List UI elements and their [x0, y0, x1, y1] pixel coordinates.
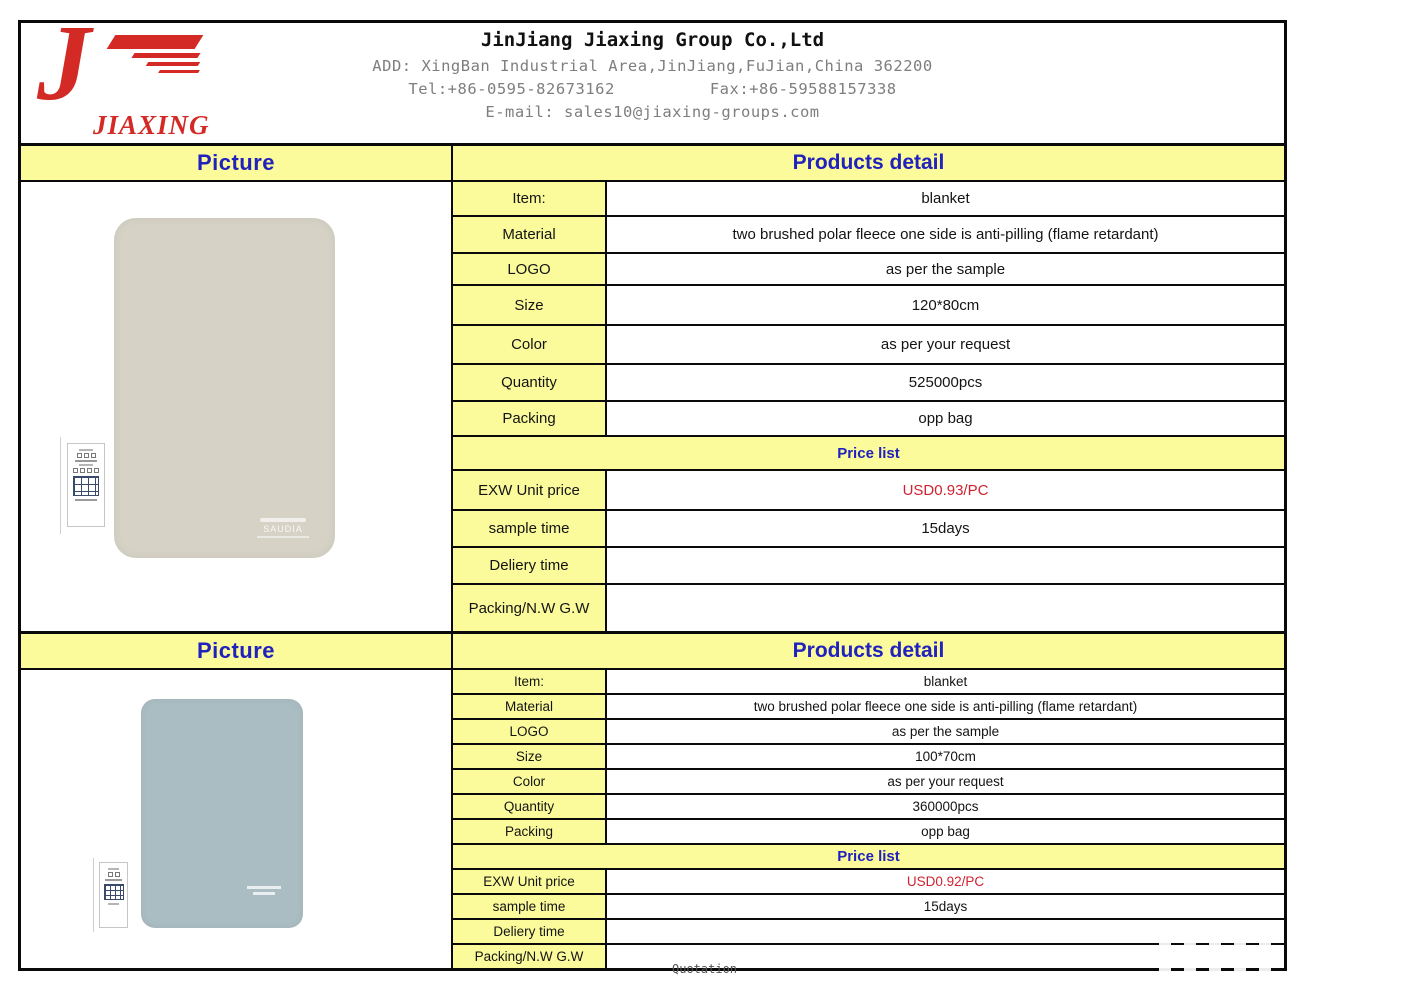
care-label-2 [99, 862, 128, 928]
size-value-2: 100*70cm [607, 745, 1284, 768]
quantity-label-1: Quantity [453, 365, 605, 400]
dimension-line [60, 437, 61, 534]
packing-nw-gw-label-2: Packing/N.W G.W [453, 945, 605, 968]
delivery-time-label-2: Deliery time [453, 920, 605, 943]
blanket-brand-mark: SAUDIA [257, 518, 309, 538]
blanket-image-1: SAUDIA [114, 218, 335, 558]
picture-header-2: Picture [21, 634, 451, 668]
exw-price-value-1: USD0.93/PC [607, 471, 1284, 509]
exw-price-label-1: EXW Unit price [453, 471, 605, 509]
company-info: JinJiang Jiaxing Group Co.,Ltd ADD: Xing… [21, 29, 1284, 126]
sample-time-label-2: sample time [453, 895, 605, 918]
material-label-1: Material [453, 217, 605, 252]
brand-name-text: SAUDIA [263, 524, 303, 534]
item-value-2: blanket [607, 670, 1284, 693]
item-value-1: blanket [607, 182, 1284, 215]
packing-label-2: Packing [453, 820, 605, 843]
color-label-1: Color [453, 326, 605, 363]
company-address: ADD: XingBan Industrial Area,JinJiang,Fu… [21, 57, 1284, 75]
logo-value-1: as per the sample [607, 254, 1284, 284]
picture-header-1: Picture [21, 146, 451, 180]
color-value-2: as per your request [607, 770, 1284, 793]
item-label-2: Item: [453, 670, 605, 693]
company-tel: Tel:+86-0595-82673162 [408, 80, 614, 98]
size-label-1: Size [453, 286, 605, 324]
delivery-time-value-2 [607, 920, 1284, 943]
care-label-1 [67, 443, 105, 527]
material-label-2: Material [453, 695, 605, 718]
sample-time-label-1: sample time [453, 511, 605, 546]
brand-underline [257, 536, 309, 538]
sample-time-value-1: 15days [607, 511, 1284, 546]
logo-label-1: LOGO [453, 254, 605, 284]
logo-value-2: as per the sample [607, 720, 1284, 743]
packing-value-2: opp bag [607, 820, 1284, 843]
company-name: JinJiang Jiaxing Group Co.,Ltd [21, 29, 1284, 51]
item-label-1: Item: [453, 182, 605, 215]
logo-label-2: LOGO [453, 720, 605, 743]
quantity-value-2: 360000pcs [607, 795, 1284, 818]
delivery-time-value-1 [607, 548, 1284, 583]
delivery-time-label-1: Deliery time [453, 548, 605, 583]
color-label-2: Color [453, 770, 605, 793]
products-detail-header-2: Products detail [453, 634, 1284, 668]
quantity-value-1: 525000pcs [607, 365, 1284, 400]
exw-price-label-2: EXW Unit price [453, 870, 605, 893]
sheet-tab-label: Quotation [672, 962, 737, 976]
dimension-line-2 [93, 858, 94, 932]
exw-price-value-2: USD0.92/PC [607, 870, 1284, 893]
packing-nw-gw-label-1: Packing/N.W G.W [453, 585, 605, 631]
care-label-grid [73, 476, 99, 496]
product-picture-1: SAUDIA [21, 182, 451, 631]
products-detail-header-1: Products detail [453, 146, 1284, 180]
company-tel-fax: Tel:+86-0595-82673162 Fax:+86-5958815733… [21, 80, 1284, 98]
company-header: J JIAXING JinJiang Jiaxing Group Co.,Ltd… [21, 23, 1284, 143]
quotation-document: J JIAXING JinJiang Jiaxing Group Co.,Ltd… [18, 20, 1287, 971]
company-email: E-mail: sales10@jiaxing-groups.com [21, 103, 1284, 121]
material-value-1: two brushed polar fleece one side is ant… [607, 217, 1284, 252]
size-value-1: 120*80cm [607, 286, 1284, 324]
packing-label-1: Packing [453, 402, 605, 435]
packing-nw-gw-value-1 [607, 585, 1284, 631]
product-picture-2 [21, 670, 451, 968]
brand-arabic-script [260, 518, 306, 522]
price-list-header-1: Price list [453, 437, 1284, 469]
sample-time-value-2: 15days [607, 895, 1284, 918]
company-fax: Fax:+86-59588157338 [710, 80, 897, 98]
packing-value-1: opp bag [607, 402, 1284, 435]
material-value-2: two brushed polar fleece one side is ant… [607, 695, 1284, 718]
quantity-label-2: Quantity [453, 795, 605, 818]
blanket-image-2 [141, 699, 303, 928]
product-section-1: Picture Products detail SAUDIA I [21, 143, 1284, 631]
care-label-grid-2 [104, 884, 124, 900]
size-label-2: Size [453, 745, 605, 768]
color-value-1: as per your request [607, 326, 1284, 363]
product-section-2: Picture Products detail Item: blanket Ma… [21, 631, 1284, 968]
blanket-brand-mark-2 [247, 886, 281, 898]
price-list-header-2: Price list [453, 845, 1284, 868]
